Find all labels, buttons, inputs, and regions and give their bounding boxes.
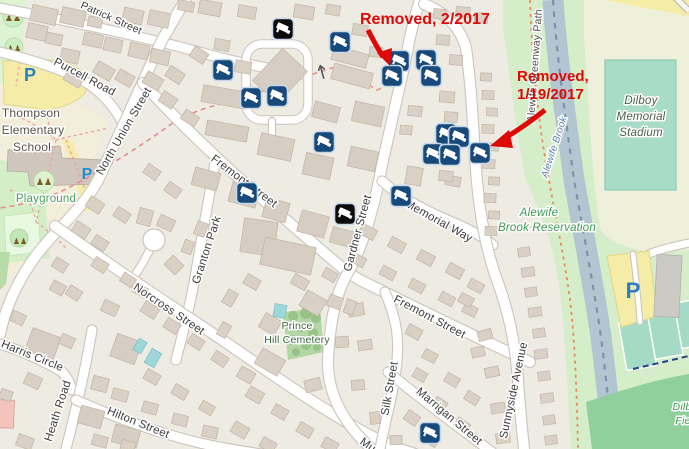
- svg-text:Dilboy: Dilboy: [624, 95, 658, 107]
- svg-text:Removed, 2/2017: Removed, 2/2017: [360, 11, 490, 28]
- svg-text:Fie: Fie: [675, 415, 689, 427]
- svg-text:Alewife: Alewife: [519, 207, 558, 219]
- svg-text:Prince: Prince: [282, 320, 313, 332]
- svg-text:Stadium: Stadium: [619, 127, 663, 139]
- svg-text:Thompson: Thompson: [2, 106, 60, 120]
- svg-text:Playground: Playground: [16, 193, 76, 205]
- svg-text:Hill Cemetery: Hill Cemetery: [264, 334, 330, 346]
- svg-text:P: P: [82, 166, 93, 183]
- svg-text:Elementary: Elementary: [2, 123, 65, 137]
- svg-text:Brook Reservation: Brook Reservation: [498, 222, 596, 234]
- svg-text:P: P: [626, 278, 641, 303]
- svg-text:1/19/2017: 1/19/2017: [517, 86, 584, 103]
- svg-text:Removed,: Removed,: [517, 68, 589, 85]
- svg-text:♟♟: ♟♟: [36, 177, 52, 187]
- svg-text:School: School: [13, 140, 51, 154]
- svg-text:♟♟: ♟♟: [13, 237, 27, 246]
- svg-text:Memorial: Memorial: [617, 111, 666, 123]
- svg-text:Dilb: Dilb: [673, 401, 689, 413]
- svg-text:P: P: [24, 65, 36, 85]
